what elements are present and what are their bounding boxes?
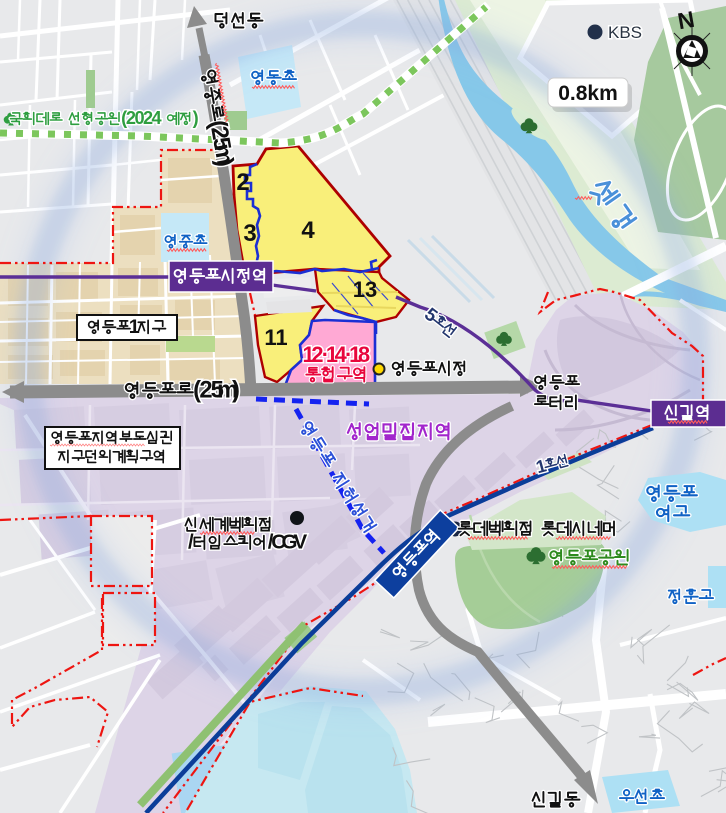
svg-text:): ) (193, 108, 199, 128)
svg-text:KBS: KBS (608, 23, 642, 42)
svg-text:): ) (232, 377, 240, 404)
svg-text:4: 4 (301, 217, 315, 244)
svg-text:/: / (188, 531, 194, 554)
svg-text:0.8km: 0.8km (558, 82, 618, 105)
svg-text:13: 13 (353, 277, 377, 302)
svg-text:3: 3 (243, 220, 256, 247)
svg-text:8: 8 (358, 342, 370, 367)
svg-text:V: V (293, 531, 307, 554)
svg-text:4: 4 (152, 108, 163, 128)
svg-text:11: 11 (264, 325, 287, 350)
svg-text:1: 1 (129, 316, 140, 338)
svg-text:2: 2 (236, 169, 249, 196)
